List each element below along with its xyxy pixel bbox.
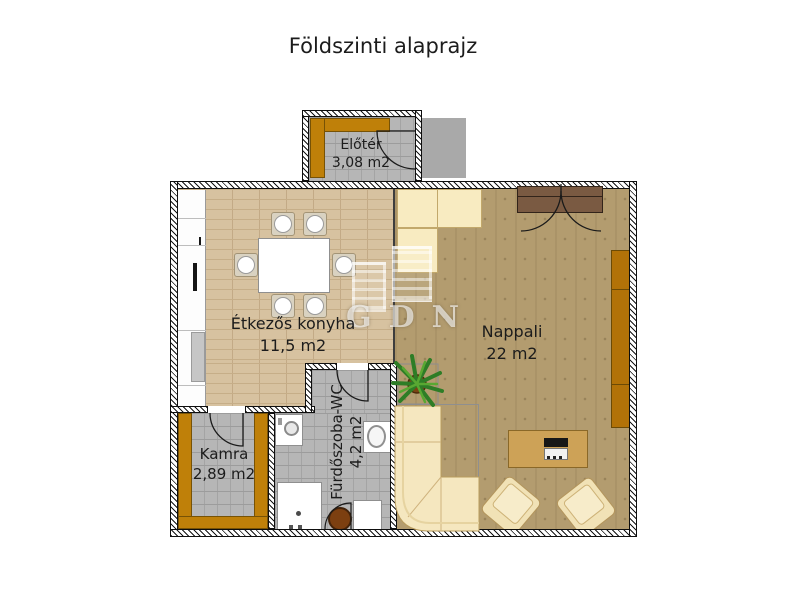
bath-living-wall bbox=[390, 363, 397, 529]
washing-machine-icon bbox=[275, 414, 303, 446]
room-area: 11,5 m2 bbox=[231, 335, 356, 357]
room-label-furdo: Fürdőszoba-WC 4,2 m2 bbox=[328, 362, 368, 522]
cabinet-divider bbox=[612, 384, 629, 385]
handle-icon bbox=[199, 237, 201, 245]
dining-chair bbox=[234, 253, 258, 277]
room-name: Fürdőszoba-WC bbox=[328, 362, 347, 522]
room-name: Kamra bbox=[193, 444, 255, 464]
room-area: 2,89 m2 bbox=[193, 464, 255, 484]
room-divider-line bbox=[393, 189, 395, 363]
kamra-wall-top bbox=[170, 406, 208, 413]
stereo-icon bbox=[544, 438, 568, 447]
wall-left bbox=[170, 181, 178, 537]
faucet-icon bbox=[193, 263, 197, 291]
room-area: 4,2 m2 bbox=[347, 362, 366, 522]
counter-divider bbox=[178, 385, 206, 386]
page-title: Földszinti alaprajz bbox=[289, 34, 477, 58]
cabinet-divider bbox=[612, 289, 629, 290]
dining-chair bbox=[332, 253, 356, 277]
room-name: Étkezős konyha bbox=[231, 313, 356, 335]
dining-chair bbox=[303, 212, 327, 236]
eloter-cabinet bbox=[310, 118, 325, 178]
room-area: 22 m2 bbox=[482, 343, 543, 365]
counter-divider bbox=[178, 218, 206, 219]
bath-wall-notch bbox=[305, 363, 312, 413]
wall-right bbox=[629, 181, 637, 537]
door-lintel-line bbox=[518, 196, 602, 197]
room-label-kamra: Kamra 2,89 m2 bbox=[193, 444, 255, 484]
room-label-konyha: Étkezős konyha 11,5 m2 bbox=[231, 313, 356, 357]
kamra-shelf bbox=[178, 413, 192, 529]
wall-bottom bbox=[170, 529, 637, 537]
room-name: Nappali bbox=[482, 321, 543, 343]
counter-divider bbox=[437, 189, 438, 228]
sofa-zone-outline bbox=[393, 404, 479, 531]
room-name: Előtér bbox=[332, 136, 390, 154]
room-label-eloter: Előtér 3,08 m2 bbox=[332, 136, 390, 172]
floorplan-canvas: Földszinti alaprajz bbox=[0, 0, 800, 600]
kamra-bath-wall bbox=[268, 413, 275, 529]
shower-tray-icon bbox=[277, 482, 322, 530]
room-label-nappali: Nappali 22 m2 bbox=[482, 321, 543, 365]
kamra-shelf bbox=[254, 413, 268, 529]
corner-counter-block bbox=[397, 228, 438, 273]
corner-counter-block bbox=[397, 189, 482, 228]
wall-cabinet bbox=[611, 250, 630, 428]
stove-icon bbox=[191, 332, 205, 382]
eloter-wall-left bbox=[302, 110, 309, 181]
kamra-shelf bbox=[178, 516, 268, 529]
dining-chair bbox=[271, 212, 295, 236]
stereo-icon bbox=[544, 448, 568, 460]
eloter-wall-right bbox=[415, 110, 422, 181]
eloter-wall-top bbox=[302, 110, 422, 117]
room-area: 3,08 m2 bbox=[332, 154, 390, 172]
dining-table bbox=[258, 238, 330, 293]
porch-slab bbox=[421, 118, 466, 178]
counter-divider bbox=[178, 330, 206, 331]
counter-divider bbox=[178, 245, 206, 246]
balcony-door-panel bbox=[517, 186, 603, 213]
coffee-table bbox=[508, 430, 588, 468]
kitchen-counter bbox=[178, 190, 206, 406]
